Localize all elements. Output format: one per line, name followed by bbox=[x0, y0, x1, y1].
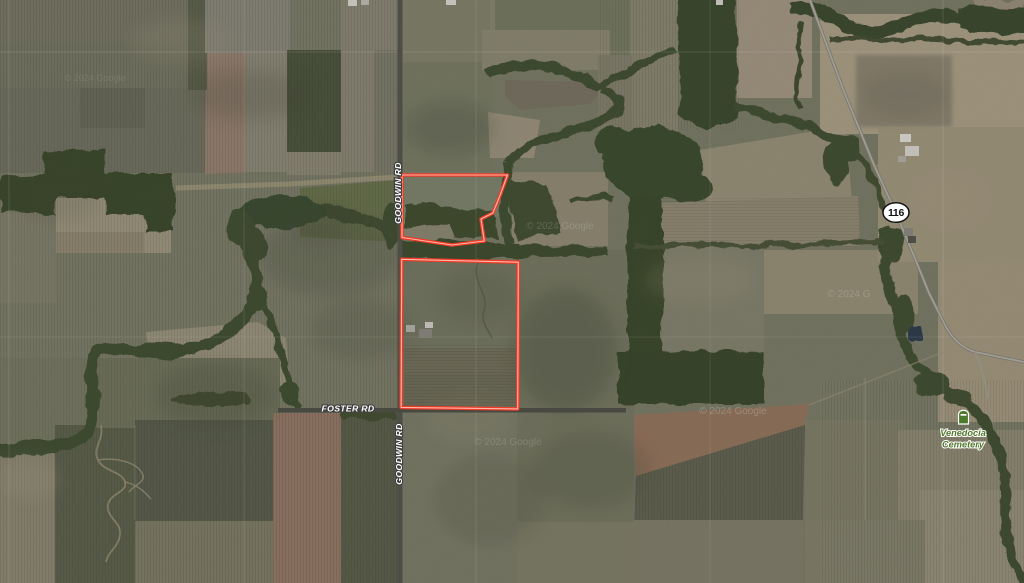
svg-text:Venedocia: Venedocia bbox=[940, 428, 986, 438]
svg-text:FOSTER RD: FOSTER RD bbox=[322, 404, 375, 414]
svg-text:© 2024 Google: © 2024 Google bbox=[474, 437, 542, 448]
svg-text:© 2024 Google: © 2024 Google bbox=[65, 73, 126, 83]
svg-text:© 2024 Google: © 2024 Google bbox=[526, 221, 594, 232]
svg-text:GOODWIN RD: GOODWIN RD bbox=[394, 423, 404, 485]
svg-text:Cemetery: Cemetery bbox=[942, 440, 985, 450]
svg-text:© 2024 G: © 2024 G bbox=[828, 289, 871, 300]
svg-text:116: 116 bbox=[888, 207, 904, 219]
svg-text:GOODWIN RD: GOODWIN RD bbox=[393, 162, 403, 224]
svg-text:© 2024 Google: © 2024 Google bbox=[699, 406, 767, 417]
